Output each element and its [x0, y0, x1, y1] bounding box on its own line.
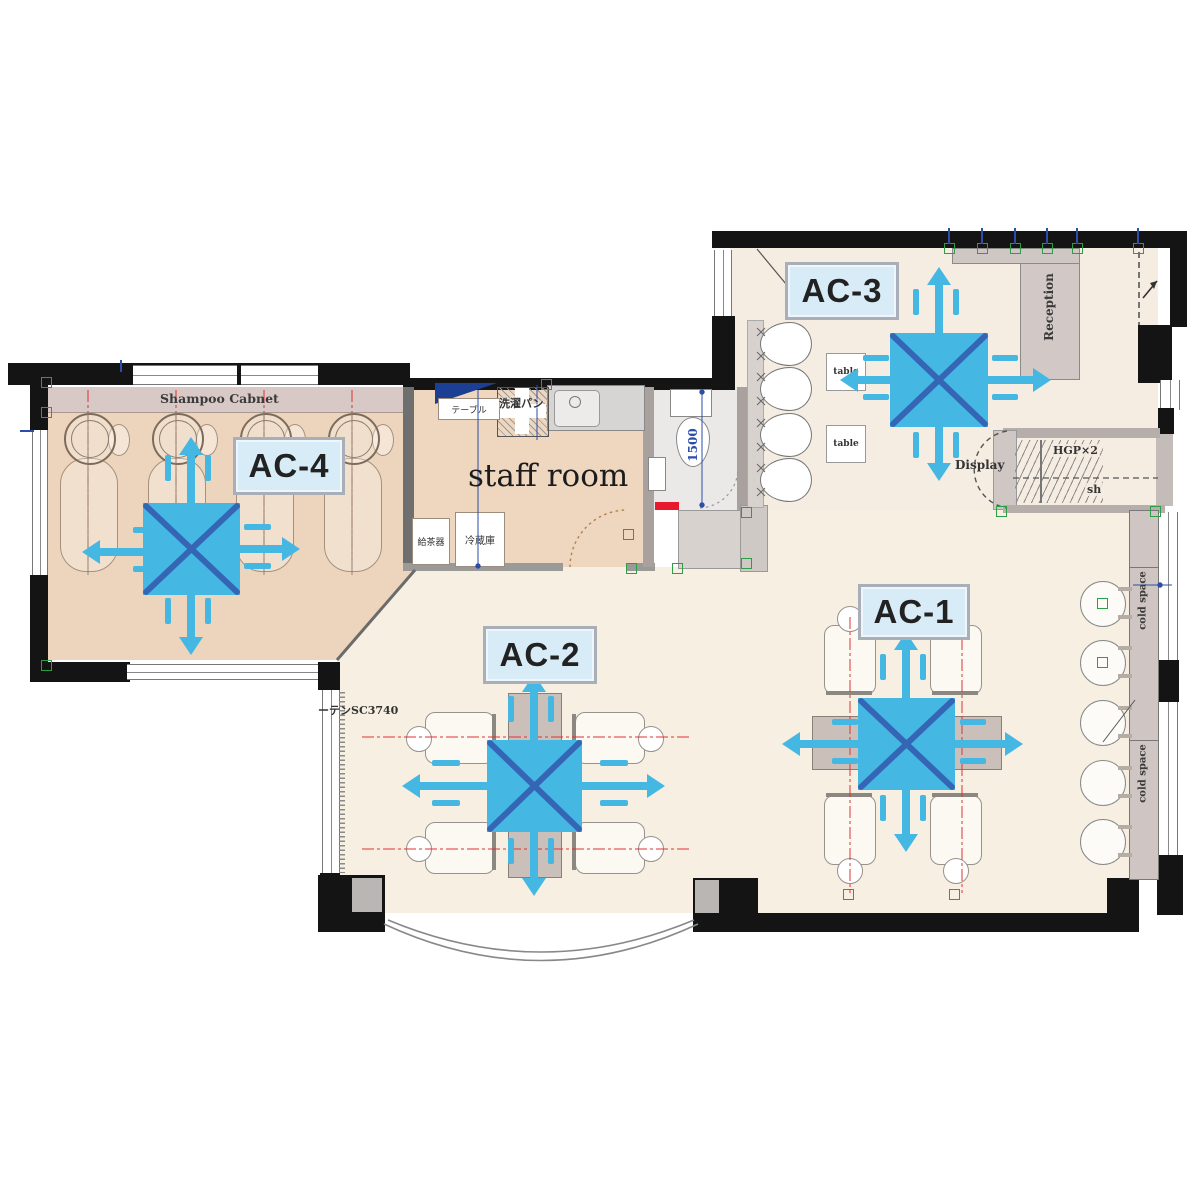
airflow-arrow	[240, 545, 282, 553]
survey-marker	[1010, 243, 1021, 254]
survey-marker	[626, 563, 637, 574]
wall-right-d	[1157, 855, 1183, 915]
window-ac4-bottom	[127, 664, 320, 680]
styling-chair-head	[406, 726, 432, 752]
waiting-chair	[760, 322, 812, 366]
styling-chair-head	[638, 836, 664, 862]
side-table: table	[826, 425, 866, 463]
chair-arm	[1118, 794, 1132, 798]
cold-space-label-lower: cold space	[1138, 734, 1149, 814]
airflow-dash	[913, 432, 919, 458]
airflow-arrow	[100, 548, 143, 556]
wall-bottom	[693, 913, 1139, 932]
tea-server-label: 給茶器	[417, 535, 444, 548]
airflow-arrow	[420, 782, 487, 790]
airflow-arrowhead	[782, 732, 800, 756]
chair-arm	[1118, 853, 1132, 857]
styling-chair-head	[837, 858, 863, 884]
dimension-tick	[948, 228, 950, 244]
airflow-arrow	[955, 740, 1005, 748]
ac1-label: AC-1	[858, 584, 970, 640]
survey-marker	[41, 377, 52, 388]
styling-chair	[930, 795, 982, 865]
waiting-chair	[760, 458, 812, 502]
chair-arm	[1118, 825, 1132, 829]
airflow-arrowhead	[894, 834, 918, 852]
chair-arm	[1118, 674, 1132, 678]
chair-back	[826, 793, 872, 797]
survey-marker	[741, 507, 752, 518]
airflow-arrowhead	[282, 537, 300, 561]
window-right-c	[1158, 702, 1178, 855]
airflow-dash	[953, 432, 959, 458]
survey-marker	[843, 889, 854, 900]
door-threshold-marker	[655, 502, 679, 510]
airflow-arrowhead	[647, 774, 665, 798]
survey-marker	[741, 558, 752, 569]
chair-arm	[1118, 646, 1132, 650]
dim-1500-label: 1500	[686, 420, 700, 470]
toilet-hand-sink	[648, 457, 666, 491]
wall-ac3-left	[712, 316, 735, 390]
airflow-arrowhead	[82, 540, 100, 564]
styling-chair	[425, 822, 495, 874]
airflow-arrow	[530, 832, 538, 878]
hanger-rack-divider	[1040, 440, 1042, 503]
airflow-dash	[548, 838, 554, 864]
ac4-label-text: AC-4	[248, 447, 329, 485]
ac-unit-1	[858, 698, 955, 790]
airflow-dash	[432, 760, 460, 766]
survey-marker	[41, 660, 52, 671]
ac3-label: AC-3	[785, 262, 899, 320]
airflow-dash	[960, 719, 986, 725]
chair-arm	[1118, 615, 1132, 619]
airflow-dash	[165, 455, 171, 481]
chair-arm	[1118, 766, 1132, 770]
staff-table-label: テーブル	[451, 403, 486, 416]
ac3-label-text: AC-3	[801, 272, 882, 310]
salon-floor-plan: Reception HGP×2 sh Display cold space co…	[0, 0, 1200, 1200]
airflow-dash	[953, 289, 959, 315]
wall-right-light	[1156, 434, 1173, 506]
styling-chair	[575, 712, 645, 764]
airflow-dash	[432, 800, 460, 806]
hgp-label: HGP×2	[1051, 444, 1100, 457]
airflow-dash	[880, 795, 886, 821]
airflow-dash	[133, 527, 160, 533]
airflow-dash	[992, 394, 1018, 400]
airflow-dash	[205, 598, 211, 624]
styling-chair	[575, 822, 645, 874]
airflow-dash	[244, 524, 271, 530]
airflow-arrowhead	[179, 637, 203, 655]
airflow-dash	[863, 355, 889, 361]
display-shelf-frame	[1003, 428, 1160, 438]
airflow-dash	[133, 566, 160, 572]
dimension-tick	[120, 360, 122, 372]
chair-arm	[1118, 734, 1132, 738]
airflow-dash	[920, 654, 926, 680]
shampoo-cabinet-label: Shampoo Cabnet	[160, 391, 279, 406]
airflow-dash	[880, 654, 886, 680]
ac1-label-text: AC-1	[873, 593, 954, 631]
airflow-arrow	[187, 595, 195, 637]
airflow-dash	[244, 563, 271, 569]
airflow-dash	[508, 838, 514, 864]
airflow-arrowhead	[840, 368, 858, 392]
survey-marker	[1072, 243, 1083, 254]
entry-right-inset	[695, 880, 719, 913]
airflow-dash	[508, 696, 514, 722]
dimension-tick	[1076, 228, 1078, 244]
waiting-chair	[760, 413, 812, 457]
airflow-dash	[832, 758, 858, 764]
airflow-arrow	[582, 782, 647, 790]
airflow-dash	[992, 355, 1018, 361]
wall-right-b	[1157, 660, 1179, 702]
airflow-dash	[205, 455, 211, 481]
shampoo-basin	[64, 413, 116, 465]
dimension-tick	[1014, 228, 1016, 244]
airflow-dash	[913, 289, 919, 315]
chair-arm	[1118, 587, 1132, 591]
survey-marker	[949, 889, 960, 900]
airflow-dash	[548, 696, 554, 722]
window-right-a	[1158, 512, 1178, 660]
survey-marker	[1042, 243, 1053, 254]
airflow-arrow	[858, 376, 890, 384]
airflow-arrow	[902, 790, 910, 834]
survey-marker	[541, 379, 552, 390]
ac-unit-4	[143, 503, 240, 595]
window-right-small	[1160, 380, 1180, 410]
airflow-arrow	[935, 285, 943, 333]
ac4-label: AC-4	[233, 437, 345, 495]
wall-right-upper	[1170, 231, 1187, 327]
cold-space-label-upper: cold space	[1138, 561, 1149, 641]
survey-marker	[1097, 598, 1108, 609]
survey-marker	[672, 563, 683, 574]
airflow-dash	[600, 760, 628, 766]
window-top-ac4-a	[133, 365, 237, 385]
wall-right-seg	[1158, 408, 1174, 434]
airflow-arrowhead	[402, 774, 420, 798]
styling-chair-head	[406, 836, 432, 862]
curtain-hatch	[339, 692, 345, 873]
ac2-label: AC-2	[483, 626, 597, 684]
airflow-arrowhead	[1033, 368, 1051, 392]
laundry-pan-label: 洗濯パン	[499, 395, 544, 411]
dimension-tick	[1137, 228, 1139, 244]
dimension-tick	[1046, 228, 1048, 244]
airflow-arrowhead	[522, 878, 546, 896]
window-ac4-left	[32, 430, 48, 575]
airflow-dash	[920, 795, 926, 821]
airflow-arrow	[935, 427, 943, 463]
curtain-label: ーテンSC3740	[318, 702, 398, 718]
styling-chair	[824, 795, 876, 865]
dimension-tick	[20, 430, 34, 432]
airflow-arrowhead	[179, 437, 203, 455]
survey-marker	[1150, 506, 1161, 517]
staff-table: テーブル	[438, 398, 500, 420]
survey-marker	[1133, 243, 1144, 254]
chair-back	[932, 793, 978, 797]
kitchen-faucet	[569, 396, 581, 408]
airflow-arrowhead	[927, 267, 951, 285]
window-top-ac4-b	[241, 365, 318, 385]
refrigerator: 冷蔵庫	[455, 512, 505, 567]
wall-bottom-right-corner	[1107, 878, 1139, 932]
airflow-arrow	[530, 692, 538, 740]
wall-right-indent	[1138, 325, 1172, 383]
airflow-arrow	[187, 455, 195, 505]
toilet-tank	[670, 389, 712, 417]
airflow-arrow	[902, 650, 910, 698]
ac-unit-3	[890, 333, 988, 427]
staff-room-label: staff room	[468, 458, 628, 494]
airflow-dash	[832, 719, 858, 725]
refrigerator-label: 冷蔵庫	[465, 532, 495, 547]
entry-left-inset	[352, 878, 382, 912]
survey-marker	[1097, 657, 1108, 668]
ac-unit-2	[487, 740, 582, 832]
survey-marker	[944, 243, 955, 254]
airflow-arrow	[988, 376, 1033, 384]
chair-arm	[1118, 706, 1132, 710]
dimension-tick	[981, 228, 983, 244]
styling-chair-head	[638, 726, 664, 752]
display-label: Display	[955, 458, 1004, 472]
styling-chair	[425, 712, 495, 764]
styling-chair-head	[943, 858, 969, 884]
ac2-label-text: AC-2	[499, 636, 580, 674]
window-ac3-left	[714, 250, 732, 316]
airflow-arrow	[800, 740, 858, 748]
survey-marker	[996, 506, 1007, 517]
chair-back	[932, 691, 978, 695]
airflow-dash	[600, 800, 628, 806]
tea-server: 給茶器	[412, 518, 450, 565]
survey-marker	[623, 529, 634, 540]
chair-back	[826, 691, 872, 695]
airflow-arrowhead	[1005, 732, 1023, 756]
airflow-dash	[960, 758, 986, 764]
survey-marker	[977, 243, 988, 254]
table-label: table	[833, 439, 858, 449]
survey-marker	[41, 407, 52, 418]
airflow-arrowhead	[927, 463, 951, 481]
airflow-dash	[165, 598, 171, 624]
waiting-chair	[760, 367, 812, 411]
wall-ac4-bottom-b	[318, 662, 340, 690]
sh-label: sh	[1085, 483, 1103, 496]
reception-label: Reception	[1042, 262, 1056, 352]
airflow-dash	[863, 394, 889, 400]
